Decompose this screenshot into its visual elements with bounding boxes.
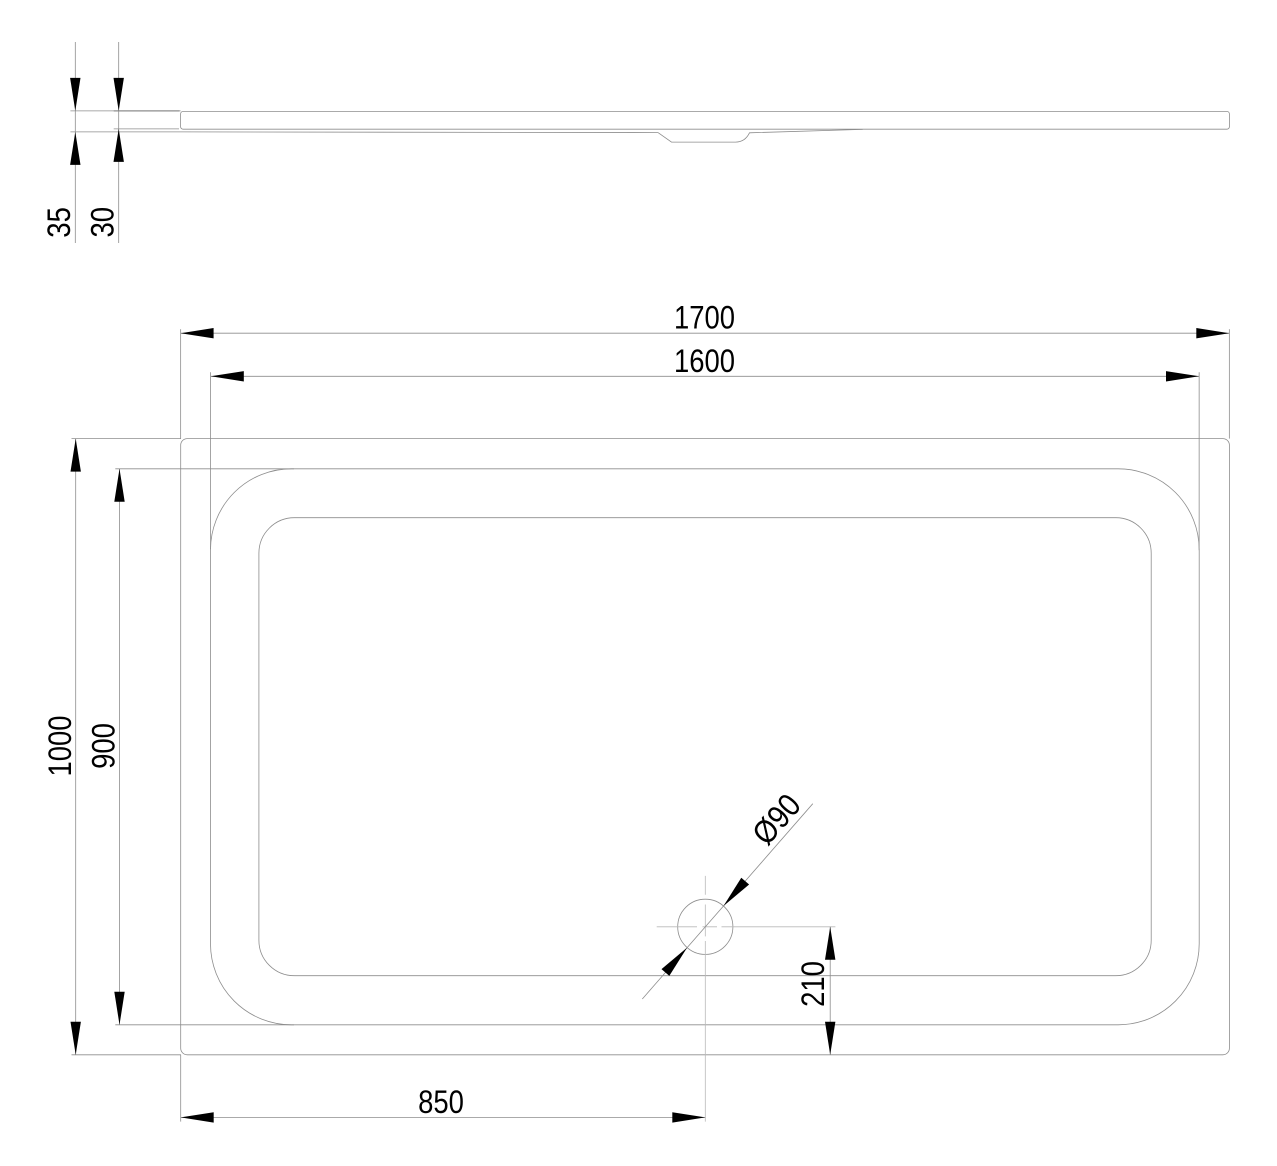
svg-text:Ø90: Ø90 xyxy=(745,787,808,851)
svg-text:1700: 1700 xyxy=(674,299,735,335)
svg-text:210: 210 xyxy=(795,961,831,1007)
svg-text:1000: 1000 xyxy=(42,716,78,777)
svg-text:35: 35 xyxy=(41,207,77,238)
svg-text:30: 30 xyxy=(85,207,121,238)
svg-text:1600: 1600 xyxy=(674,343,735,379)
svg-text:900: 900 xyxy=(85,723,121,769)
svg-text:850: 850 xyxy=(418,1084,464,1120)
